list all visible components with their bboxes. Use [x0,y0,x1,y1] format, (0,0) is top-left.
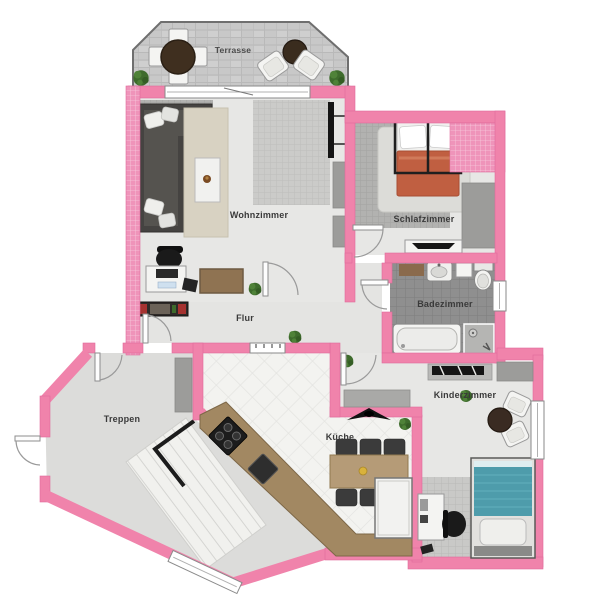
dining-chair-icon [360,439,381,456]
vestibule-sideboard-icon [344,390,410,407]
dining-chair-icon [384,439,405,456]
bath-window [493,281,506,311]
fridge-icon [375,478,412,538]
exterior-door [15,436,40,465]
bathtub-icon [393,324,461,354]
kids-window [531,401,544,459]
kids-wardrobe-icon [497,362,533,381]
flur-label: Flur [236,313,254,323]
sliding-window [165,86,310,98]
wall-shelf-icon [428,364,492,380]
plant-icon [249,283,262,296]
badezimmer-label: Badezimmer [417,299,473,309]
wardrobe-icon [462,183,497,248]
toilet-icon [474,262,493,290]
bath-mat-icon [399,264,424,276]
pass-window [250,343,285,353]
kids-bed-icon [471,458,535,558]
plant-icon [399,418,411,430]
wohnzimmer-tile-area-right [253,100,330,205]
treppen-label: Treppen [104,414,140,424]
side-table-icon [488,408,512,432]
sink-icon [427,262,452,281]
shower-icon [464,324,494,354]
hatched-wall [126,86,140,355]
kinderzimmer-label: Kinderzimmer [434,390,497,400]
landing-wardrobe-icon [175,358,192,412]
coffee-table-icon [195,158,220,202]
sideboard-icon [200,269,243,293]
wohnzimmer-label: Wohnzimmer [230,210,289,220]
bath-cabinet-icon [456,263,472,277]
floorplan-canvas: Terrasse Wohnzimmer Schlafzimmer Badezim… [0,0,600,600]
plant-icon [289,331,302,344]
dining-chair-icon [336,489,357,506]
plant-icon [329,70,344,85]
floorplan-page: Terrasse Wohnzimmer Schlafzimmer Badezim… [0,0,600,600]
plant-icon [133,70,148,85]
terrasse-label: Terrasse [215,45,251,55]
schlafzimmer-label: Schlafzimmer [394,214,455,224]
kueche-label: Küche [326,432,355,442]
tv-board-icon [405,240,462,253]
